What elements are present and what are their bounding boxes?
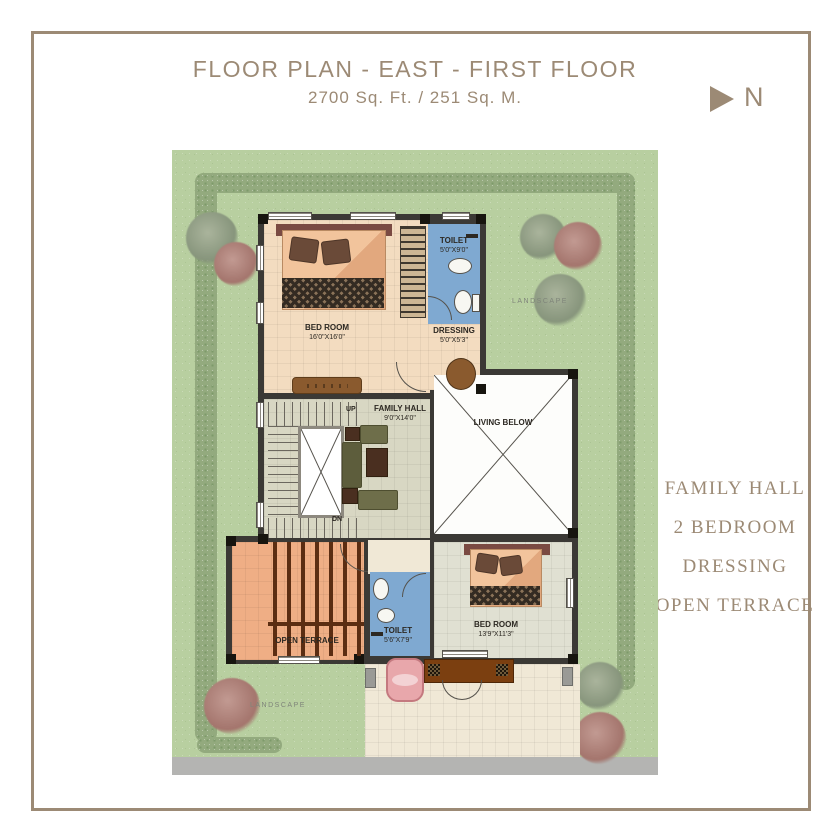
pillow-icon xyxy=(475,552,500,574)
window-icon xyxy=(256,302,264,324)
window-icon xyxy=(256,502,264,528)
room-dims: 13'9"X11'3" xyxy=(474,630,518,640)
room-dims: 5'6"X7'9" xyxy=(384,636,412,646)
room-legend: FAMILY HALL 2 BEDROOM DRESSING OPEN TERR… xyxy=(652,478,818,634)
porch-pillar xyxy=(365,668,376,688)
room-dims: 16'0"X16'0" xyxy=(305,333,349,343)
site-plan: LANDSCAPE LANDSCAPE xyxy=(172,150,658,775)
toilet-wc-icon xyxy=(454,290,472,314)
pillar xyxy=(568,528,578,538)
passage xyxy=(368,540,430,574)
window-icon xyxy=(256,402,264,428)
pillow-icon xyxy=(288,236,319,264)
legend-item-family-hall: FAMILY HALL xyxy=(652,478,818,500)
sink-icon xyxy=(448,258,472,274)
legend-item-dressing: DRESSING xyxy=(652,556,818,578)
room-name: OPEN TERRACE xyxy=(275,636,339,646)
porch-pillar xyxy=(562,667,573,686)
window-icon xyxy=(442,212,470,220)
side-table-icon xyxy=(342,488,358,504)
family-hall-label: FAMILY HALL 9'0"X14'0" xyxy=(374,404,426,424)
pillar xyxy=(226,536,236,546)
toilet1-label: TOILET 5'0"X9'0" xyxy=(440,236,468,256)
sliding-door-icon xyxy=(442,650,488,658)
hedge-right xyxy=(617,173,635,690)
sofa-icon xyxy=(360,425,388,444)
window-icon xyxy=(268,212,312,220)
stairs-icon xyxy=(268,402,358,426)
room-name: DRESSING xyxy=(433,326,475,336)
stool-icon xyxy=(446,358,476,390)
window-icon xyxy=(256,245,264,271)
stairs-icon xyxy=(268,426,298,518)
room-name: TOILET xyxy=(384,626,412,636)
room-name: BED ROOM xyxy=(474,620,518,630)
window-icon xyxy=(566,578,574,608)
toilet2-label: TOILET 5'6"X7'9" xyxy=(384,626,412,646)
dressing-label: DRESSING 5'0"X5'3" xyxy=(433,326,475,346)
room-name: LIVING BELOW xyxy=(474,418,533,428)
pillar xyxy=(258,214,268,224)
toilet-wc-icon xyxy=(377,608,395,623)
pillar xyxy=(226,654,236,664)
legend-item-open-terrace: OPEN TERRACE xyxy=(652,595,818,617)
tree-icon xyxy=(574,712,626,764)
blanket-icon xyxy=(282,278,384,308)
north-indicator: N xyxy=(710,82,800,118)
room-name: BED ROOM xyxy=(305,323,349,333)
sofa-icon xyxy=(342,442,362,488)
canopy-grill-icon xyxy=(496,664,508,676)
landscape-label: LANDSCAPE xyxy=(512,298,568,305)
tree-icon xyxy=(554,222,602,270)
stair-up-label: UP xyxy=(346,406,356,413)
open-terrace-label: OPEN TERRACE xyxy=(275,636,339,646)
room-name: TOILET xyxy=(440,236,468,246)
toilet-tank-icon xyxy=(472,294,480,312)
landscape-label: LANDSCAPE xyxy=(250,702,306,709)
side-table-icon xyxy=(345,427,360,441)
room-living-below xyxy=(434,375,572,534)
pillar xyxy=(568,369,578,379)
coffee-table-icon xyxy=(366,448,388,477)
hedge-bottom-left xyxy=(197,737,282,753)
room-dims: 9'0"X14'0" xyxy=(374,414,426,424)
pillow-icon xyxy=(321,238,352,265)
north-arrow-icon xyxy=(710,86,734,112)
window-icon xyxy=(278,656,320,664)
tree-icon xyxy=(576,662,624,710)
hedge-top xyxy=(195,173,635,193)
sink-icon xyxy=(373,578,389,600)
floor-plan-page: FLOOR PLAN - EAST - FIRST FLOOR 2700 Sq.… xyxy=(0,0,840,840)
pillar xyxy=(476,384,486,394)
tree-icon xyxy=(214,242,258,286)
page-title: FLOOR PLAN - EAST - FIRST FLOOR xyxy=(0,56,830,83)
pillow-icon xyxy=(499,555,523,577)
living-below-label: LIVING BELOW xyxy=(474,418,533,428)
dresser-icon xyxy=(292,377,362,394)
page-subtitle: 2700 Sq. Ft. / 251 Sq. M. xyxy=(0,88,830,108)
pillar xyxy=(476,214,486,224)
stair-dn-label: DN xyxy=(332,516,342,523)
pillar xyxy=(258,534,268,544)
legend-item-2-bedroom: 2 BEDROOM xyxy=(652,517,818,539)
window-icon xyxy=(350,212,396,220)
stair-void xyxy=(298,426,344,518)
pergola-beam xyxy=(268,622,364,626)
canopy-grill-icon xyxy=(428,664,440,676)
bedroom2-label: BED ROOM 13'9"X11'3" xyxy=(474,620,518,640)
bedroom1-label: BED ROOM 16'0"X16'0" xyxy=(305,323,349,343)
north-label: N xyxy=(744,82,764,113)
pillar xyxy=(420,214,430,224)
pillar xyxy=(568,654,578,664)
stairs-icon xyxy=(268,518,358,538)
room-dims: 5'0"X9'0" xyxy=(440,246,468,256)
wardrobe-icon xyxy=(400,226,426,318)
room-name: FAMILY HALL xyxy=(374,404,426,414)
car-windshield-icon xyxy=(392,674,418,686)
shower-icon xyxy=(371,632,383,636)
room-dims: 5'0"X5'3" xyxy=(433,336,475,346)
blanket-icon xyxy=(470,586,540,605)
sofa-icon xyxy=(358,490,398,510)
